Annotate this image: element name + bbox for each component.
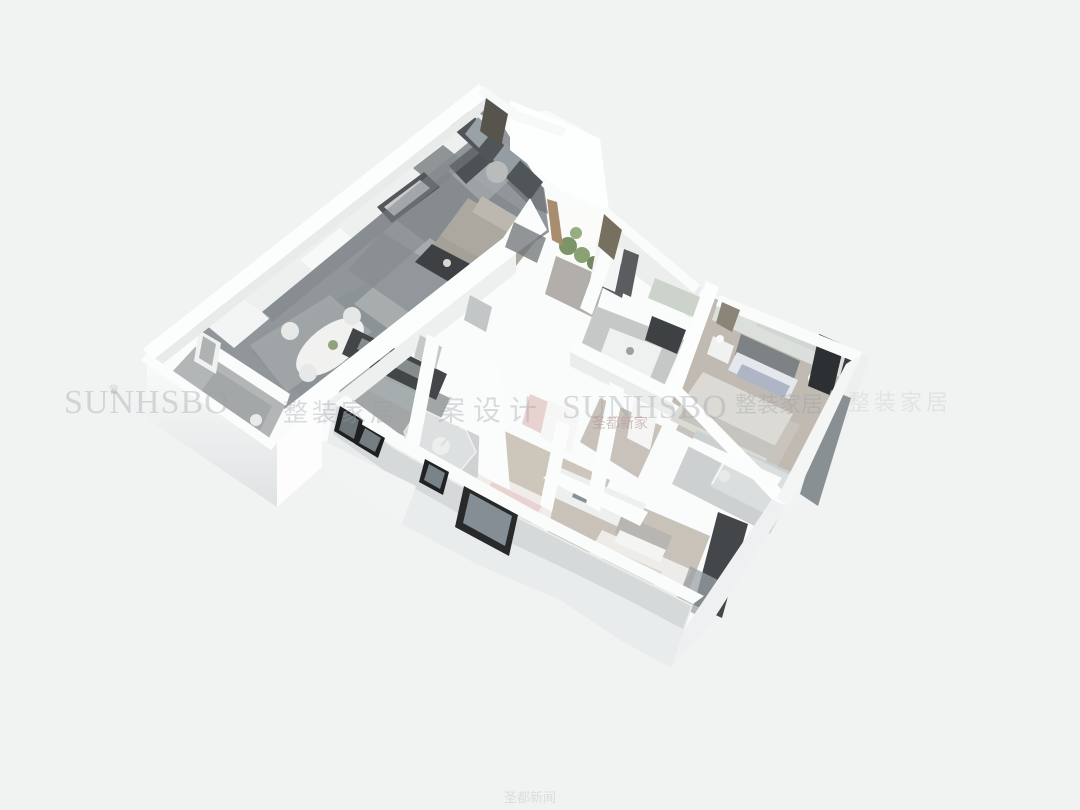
svg-text:整装家居: 整装家居 [735,392,823,417]
svg-text:圣都新闻: 圣都新闻 [504,790,556,805]
svg-text:整装家居: 整装家居 [848,390,952,415]
svg-text:SUNHSBO: SUNHSBO [64,384,230,421]
svg-text:圣都新家: 圣都新家 [592,415,648,432]
svg-text:♛: ♛ [108,382,120,397]
svg-text:整装家居: 整装家居 [283,399,399,427]
svg-text:案设计: 案设计 [437,395,545,427]
